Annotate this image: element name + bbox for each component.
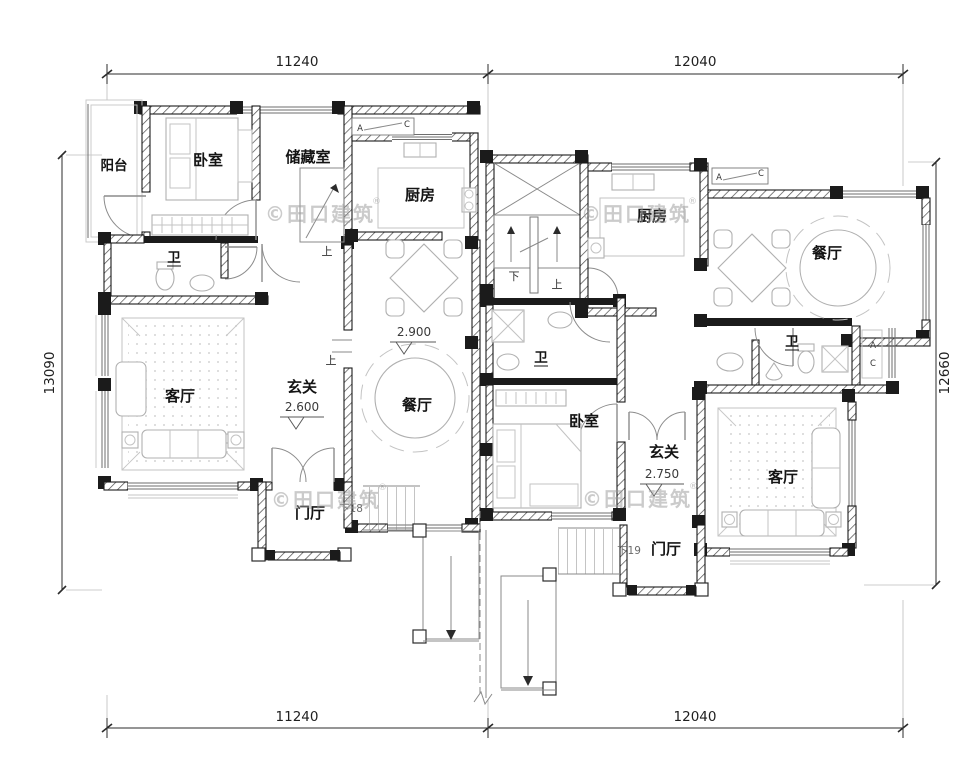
watermark-1: ©田口建筑 [265,202,375,226]
window-tag-a-3: A [870,341,876,351]
armchair-left-living [116,362,146,416]
sink-right-bath [717,353,743,371]
watermark-2: ©田口建筑 [581,202,691,226]
room-label-bath-right-main: 卫 [785,334,799,350]
dim-left-side: 13090 [42,352,58,395]
stair-down-label: 下 [509,270,520,283]
square-table-left-dining [386,240,462,316]
sink-inner-bath [548,312,572,328]
room-label-living-right: 客厅 [767,468,798,486]
watermark-3-reg: ® [378,483,387,493]
watermark-3: ©田口建筑 [271,488,381,512]
room-label-bedroom-left: 卧室 [193,151,223,169]
dim-bottom-right: 12040 [674,709,717,725]
watermark-4-reg: ® [689,482,698,492]
room-label-entry-right: 玄关 [649,443,679,461]
window-tag-a-2: A [716,173,722,183]
room-label-storage: 储藏室 [285,148,330,166]
room-label-dining-left: 餐厅 [402,396,432,414]
level-2900: 2.900 [397,325,431,339]
room-label-foyer-right: 门厅 [651,540,681,558]
room-label-bedroom-right: 卧室 [569,412,599,430]
sink-left-bath [190,275,214,291]
dim-bottom-left: 11240 [276,709,319,725]
dim-top-right: 12040 [674,54,717,70]
level-2600: 2.600 [285,400,319,414]
square-table-right-dining [714,230,790,306]
room-label-entry-left: 玄关 [287,378,317,396]
room-label-bath-left: 卫 [167,250,181,266]
foyer-right-steps: 下19 [617,545,641,557]
step-up-left-unit: 上 [326,354,337,367]
floor-plan-canvas: 11240 12040 11240 12040 13090 12660 [0,0,960,760]
level-2750: 2.750 [645,467,679,481]
floor-plan: 11240 12040 11240 12040 13090 12660 [0,0,960,760]
window-tag-c-3: C [870,359,876,369]
room-label-dining-right: 餐厅 [812,244,842,262]
sofa-right-living [740,510,824,536]
toilet-inner-bath [497,354,519,370]
dim-top-left: 11240 [276,54,319,70]
stair-up-label: 上 [552,278,563,291]
room-label-living-left: 客厅 [164,387,195,405]
stair-up-left-unit: 上 [322,245,333,258]
window-tag-c-1: C [404,120,410,130]
watermark-2-reg: ® [688,197,697,207]
toilet-left-bath [156,266,174,290]
toilet-right-bath [798,351,814,373]
fridge-right-kitchen [588,238,604,258]
window-tag-a-1: A [357,124,363,134]
room-label-balcony: 阳台 [101,157,128,174]
room-label-bath-right-inner: 卫 [534,350,548,366]
watermark-1-reg: ® [372,197,381,207]
stair-stringer [530,217,538,293]
window-tag-c-2: C [758,169,764,179]
room-label-kitchen-left: 厨房 [405,186,435,204]
watermark-4: ©田口建筑 [582,487,692,511]
dim-right-side: 12660 [937,352,953,395]
sofa-left-living [142,430,226,458]
